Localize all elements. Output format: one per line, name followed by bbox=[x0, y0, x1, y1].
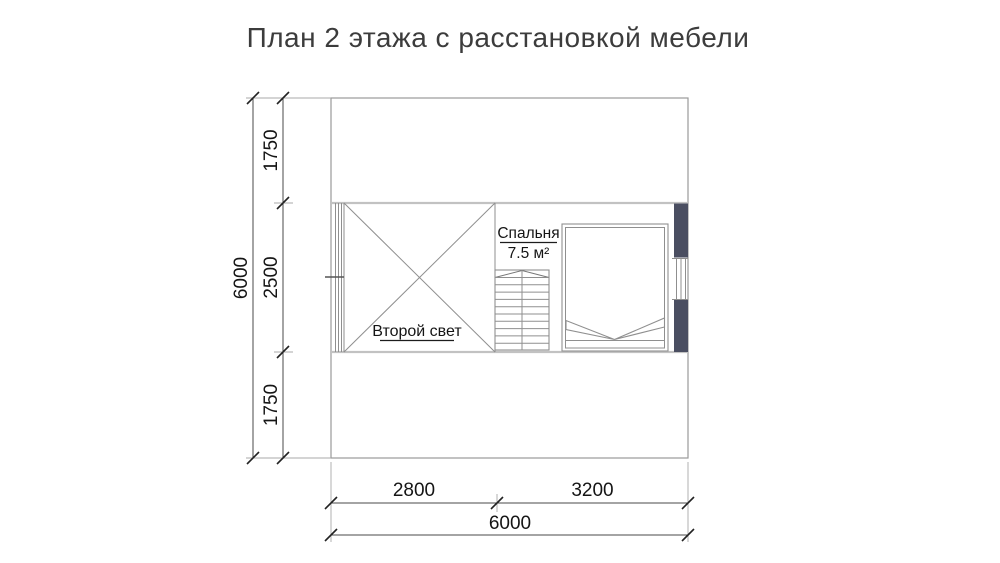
dim-label-left-6000: 6000 bbox=[231, 257, 252, 299]
floor-plan-drawing: План 2 этажа с расстановкой мебели Второ… bbox=[0, 0, 1000, 563]
dim-label-bottom-6000: 6000 bbox=[489, 513, 531, 534]
bed bbox=[562, 224, 668, 351]
dim-label-bottom-3200: 3200 bbox=[571, 480, 613, 501]
wall-pier-top bbox=[674, 204, 688, 258]
dim-label-left-1750-bottom: 1750 bbox=[261, 384, 282, 426]
bedroom-area-label: 7.5 м² bbox=[508, 245, 550, 262]
right-wall bbox=[672, 204, 688, 353]
wall-pier-bottom bbox=[674, 300, 688, 352]
dimension-bottom: 2800 3200 6000 bbox=[325, 462, 694, 542]
dim-label-left-1750-top: 1750 bbox=[261, 129, 282, 171]
window-right bbox=[672, 259, 688, 300]
dim-label-left-2500: 2500 bbox=[261, 256, 282, 298]
void-area: Второй свет bbox=[344, 203, 495, 352]
floor-plan-sheet: План 2 этажа с расстановкой мебели Второ… bbox=[0, 0, 1000, 563]
staircase bbox=[495, 270, 549, 350]
bedroom-label: Спальня bbox=[497, 225, 559, 242]
bedroom-label-group: Спальня 7.5 м² bbox=[497, 225, 559, 262]
dimension-left: 1750 2500 1750 6000 bbox=[231, 92, 331, 464]
dim-label-bottom-2800: 2800 bbox=[393, 480, 435, 501]
window-left bbox=[325, 203, 344, 352]
page-title: План 2 этажа с расстановкой мебели bbox=[247, 22, 750, 53]
void-label: Второй свет bbox=[372, 323, 462, 340]
